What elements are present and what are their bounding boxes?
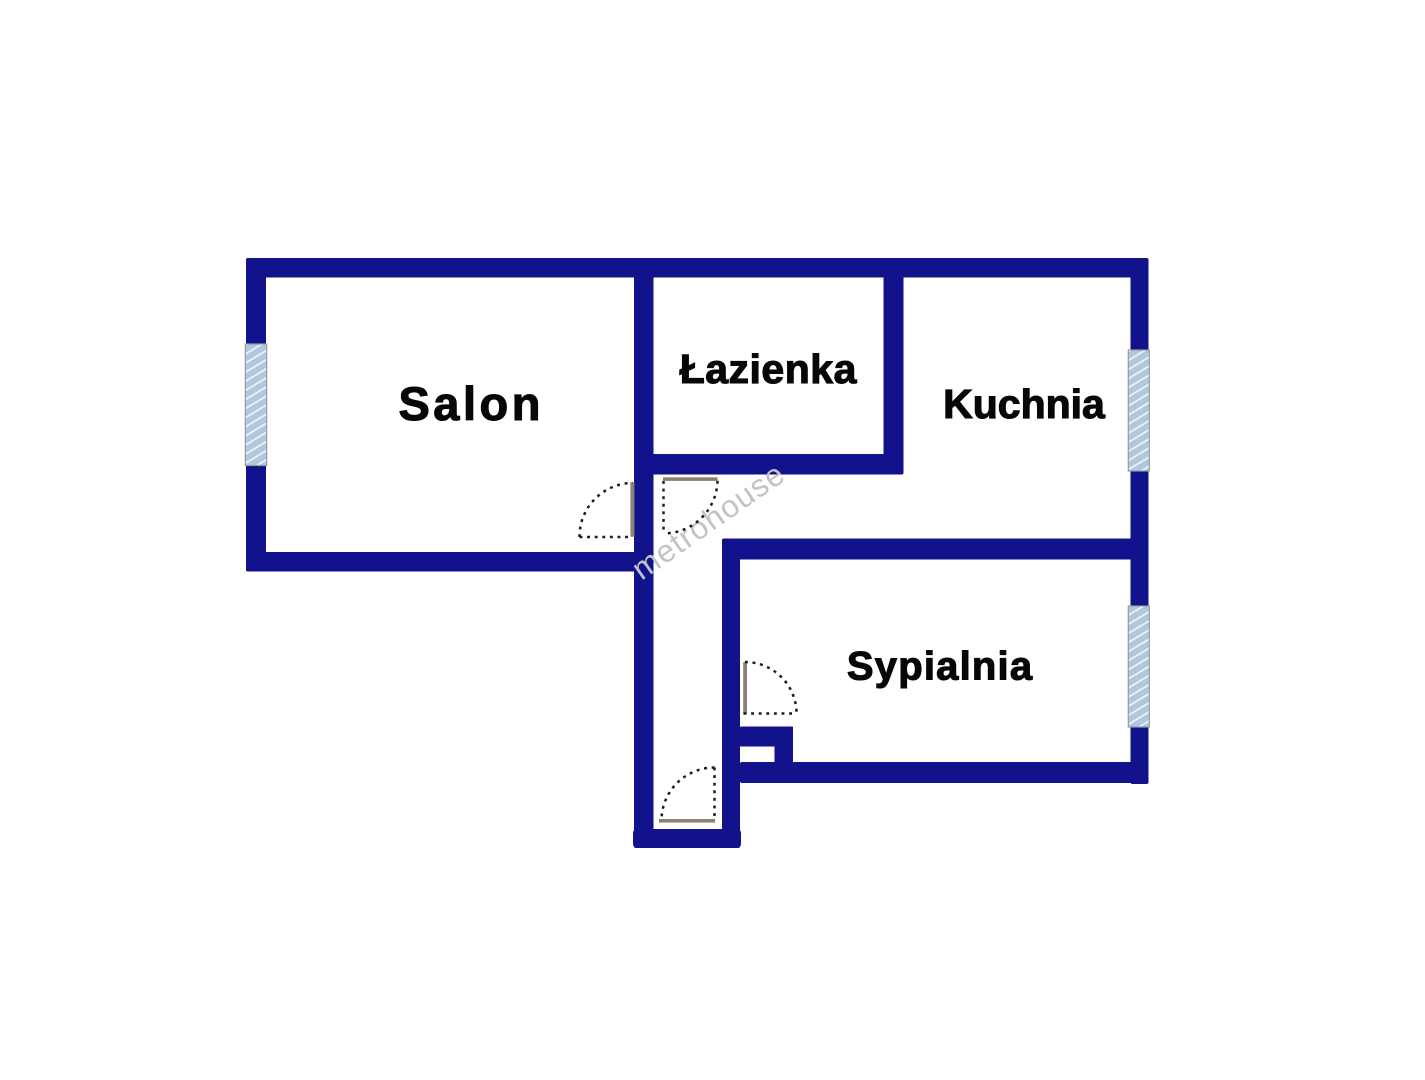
svg-text:Sypialnia: Sypialnia	[847, 645, 1033, 689]
svg-text:Salon: Salon	[398, 377, 543, 430]
svg-text:Kuchnia: Kuchnia	[943, 381, 1106, 427]
svg-text:Łazienka: Łazienka	[680, 346, 858, 392]
